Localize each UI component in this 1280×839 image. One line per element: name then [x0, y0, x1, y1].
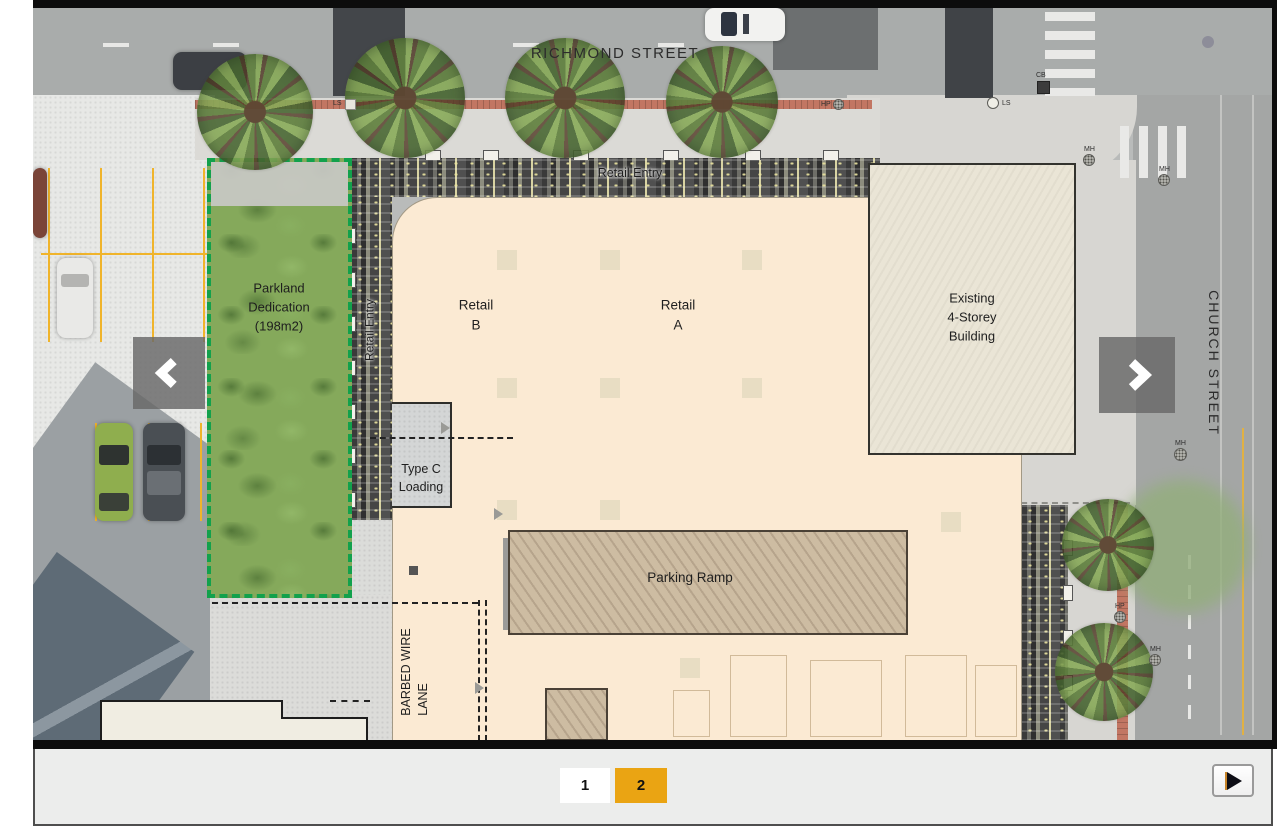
richmond-street-label: RICHMOND STREET — [531, 43, 699, 65]
parked-car — [143, 423, 185, 521]
building-roof — [773, 8, 878, 70]
tree-icon — [197, 54, 313, 170]
existing-building-label: Existing 4-Storey Building — [947, 290, 996, 347]
carousel-slide: RICHMOND STREET CHURCH STREET BARBED WIR… — [33, 0, 1277, 741]
play-icon — [1227, 772, 1242, 790]
ls-marker-label: LS — [1002, 100, 1011, 107]
chevron-left-icon — [150, 354, 188, 392]
mh-icon — [1174, 448, 1187, 461]
parkland-label: Parkland Dedication (198m2) — [248, 280, 309, 337]
flow-arrow — [494, 508, 503, 520]
mh-marker-label: MH — [1175, 440, 1186, 447]
carousel-next-button[interactable] — [1099, 337, 1175, 413]
tree-icon — [345, 38, 465, 158]
ls-marker-label: LS — [333, 100, 342, 107]
play-button[interactable] — [1212, 764, 1254, 797]
bottom-divider-bar — [33, 740, 1277, 749]
mh-icon — [1149, 654, 1161, 666]
parked-car — [95, 423, 133, 521]
hp-icon — [1114, 611, 1126, 623]
chevron-right-icon — [1117, 355, 1157, 395]
flow-arrow — [475, 682, 484, 694]
hp-marker-label: HP — [821, 101, 831, 108]
sidewalk — [1076, 160, 1136, 505]
cb-marker-label: CB — [1036, 72, 1046, 79]
mh-marker-label: MH — [1159, 166, 1170, 173]
flow-arrow — [441, 422, 450, 434]
adjacent-building — [100, 700, 283, 741]
tree-icon — [1062, 499, 1154, 591]
top-bar — [33, 0, 1277, 8]
hp-marker-label: HP — [1115, 603, 1125, 610]
barbed-wire-lane-label: BARBED WIRE LANE — [398, 628, 432, 716]
parking-ramp-label: Parking Ramp — [647, 568, 733, 588]
retail-a-label: Retail A — [661, 295, 696, 334]
type-c-loading-label: Type C Loading — [399, 460, 444, 496]
parked-car — [57, 258, 93, 338]
tree-icon — [1055, 623, 1153, 721]
retail-entry-top-label: Retail Entry — [598, 164, 663, 182]
mh-icon — [1158, 174, 1170, 186]
ls-icon — [987, 97, 999, 109]
lane-marking — [1252, 95, 1254, 735]
carousel-control-bar: 1 2 — [33, 749, 1273, 826]
ramp-stub — [545, 688, 608, 741]
existing-pavement — [211, 162, 348, 206]
lane-marking — [213, 43, 239, 47]
adjacent-building — [281, 717, 368, 741]
parked-car — [33, 168, 47, 238]
retail-entry-side-label: Retail Entry — [361, 299, 378, 361]
carousel-prev-button[interactable] — [133, 337, 205, 409]
white-van — [705, 8, 785, 41]
right-bar — [1272, 0, 1277, 741]
crosswalk — [1120, 126, 1188, 178]
lane-marking — [103, 43, 129, 47]
church-street-label: CHURCH STREET — [1204, 290, 1224, 436]
building-roof — [945, 8, 993, 98]
mh-icon — [1083, 154, 1095, 166]
retail-b-label: Retail B — [459, 295, 494, 334]
road-dot — [1202, 36, 1214, 48]
parkland-dedication-area — [207, 158, 352, 598]
ls-icon — [345, 99, 356, 110]
paver-strip-right — [1022, 505, 1068, 741]
mh-marker-label: MH — [1150, 646, 1161, 653]
crosswalk — [1045, 12, 1095, 96]
page-button-2[interactable]: 2 — [615, 768, 667, 803]
page-button-1[interactable]: 1 — [560, 768, 610, 803]
mh-marker-label: MH — [1084, 146, 1095, 153]
hp-icon — [833, 99, 844, 110]
cb-icon — [1037, 81, 1050, 94]
